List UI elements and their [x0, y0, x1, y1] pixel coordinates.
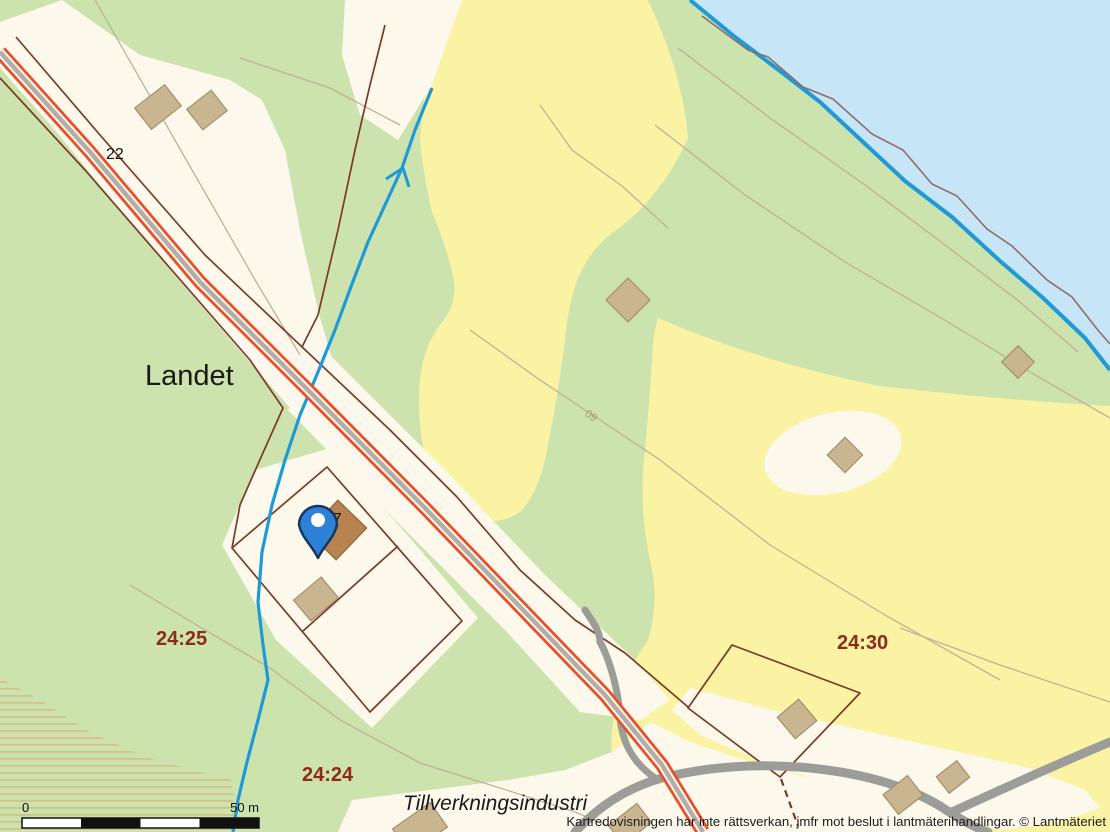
parcel-label-24-30: 24:30 — [837, 632, 888, 654]
scale-end-label: 50 m — [230, 800, 259, 815]
map-canvas[interactable]: Landet 22 17 24:25 24:24 24:30 Tillverkn… — [0, 0, 1110, 832]
parcel-label-24-24: 24:24 — [302, 764, 354, 786]
road-number-label: 22 — [106, 146, 124, 163]
land-use-label: Tillverkningsindustri — [403, 792, 589, 815]
pin-hole — [311, 513, 325, 527]
place-name-label: Landet — [145, 360, 234, 392]
parcel-label-24-25: 24:25 — [156, 628, 207, 650]
map-viewport[interactable]: Landet 22 17 24:25 24:24 24:30 Tillverkn… — [0, 0, 1110, 832]
scale-start-label: 0 — [22, 800, 29, 815]
attribution-text: Kartredovisningen har inte rättsverkan, … — [566, 814, 1106, 829]
